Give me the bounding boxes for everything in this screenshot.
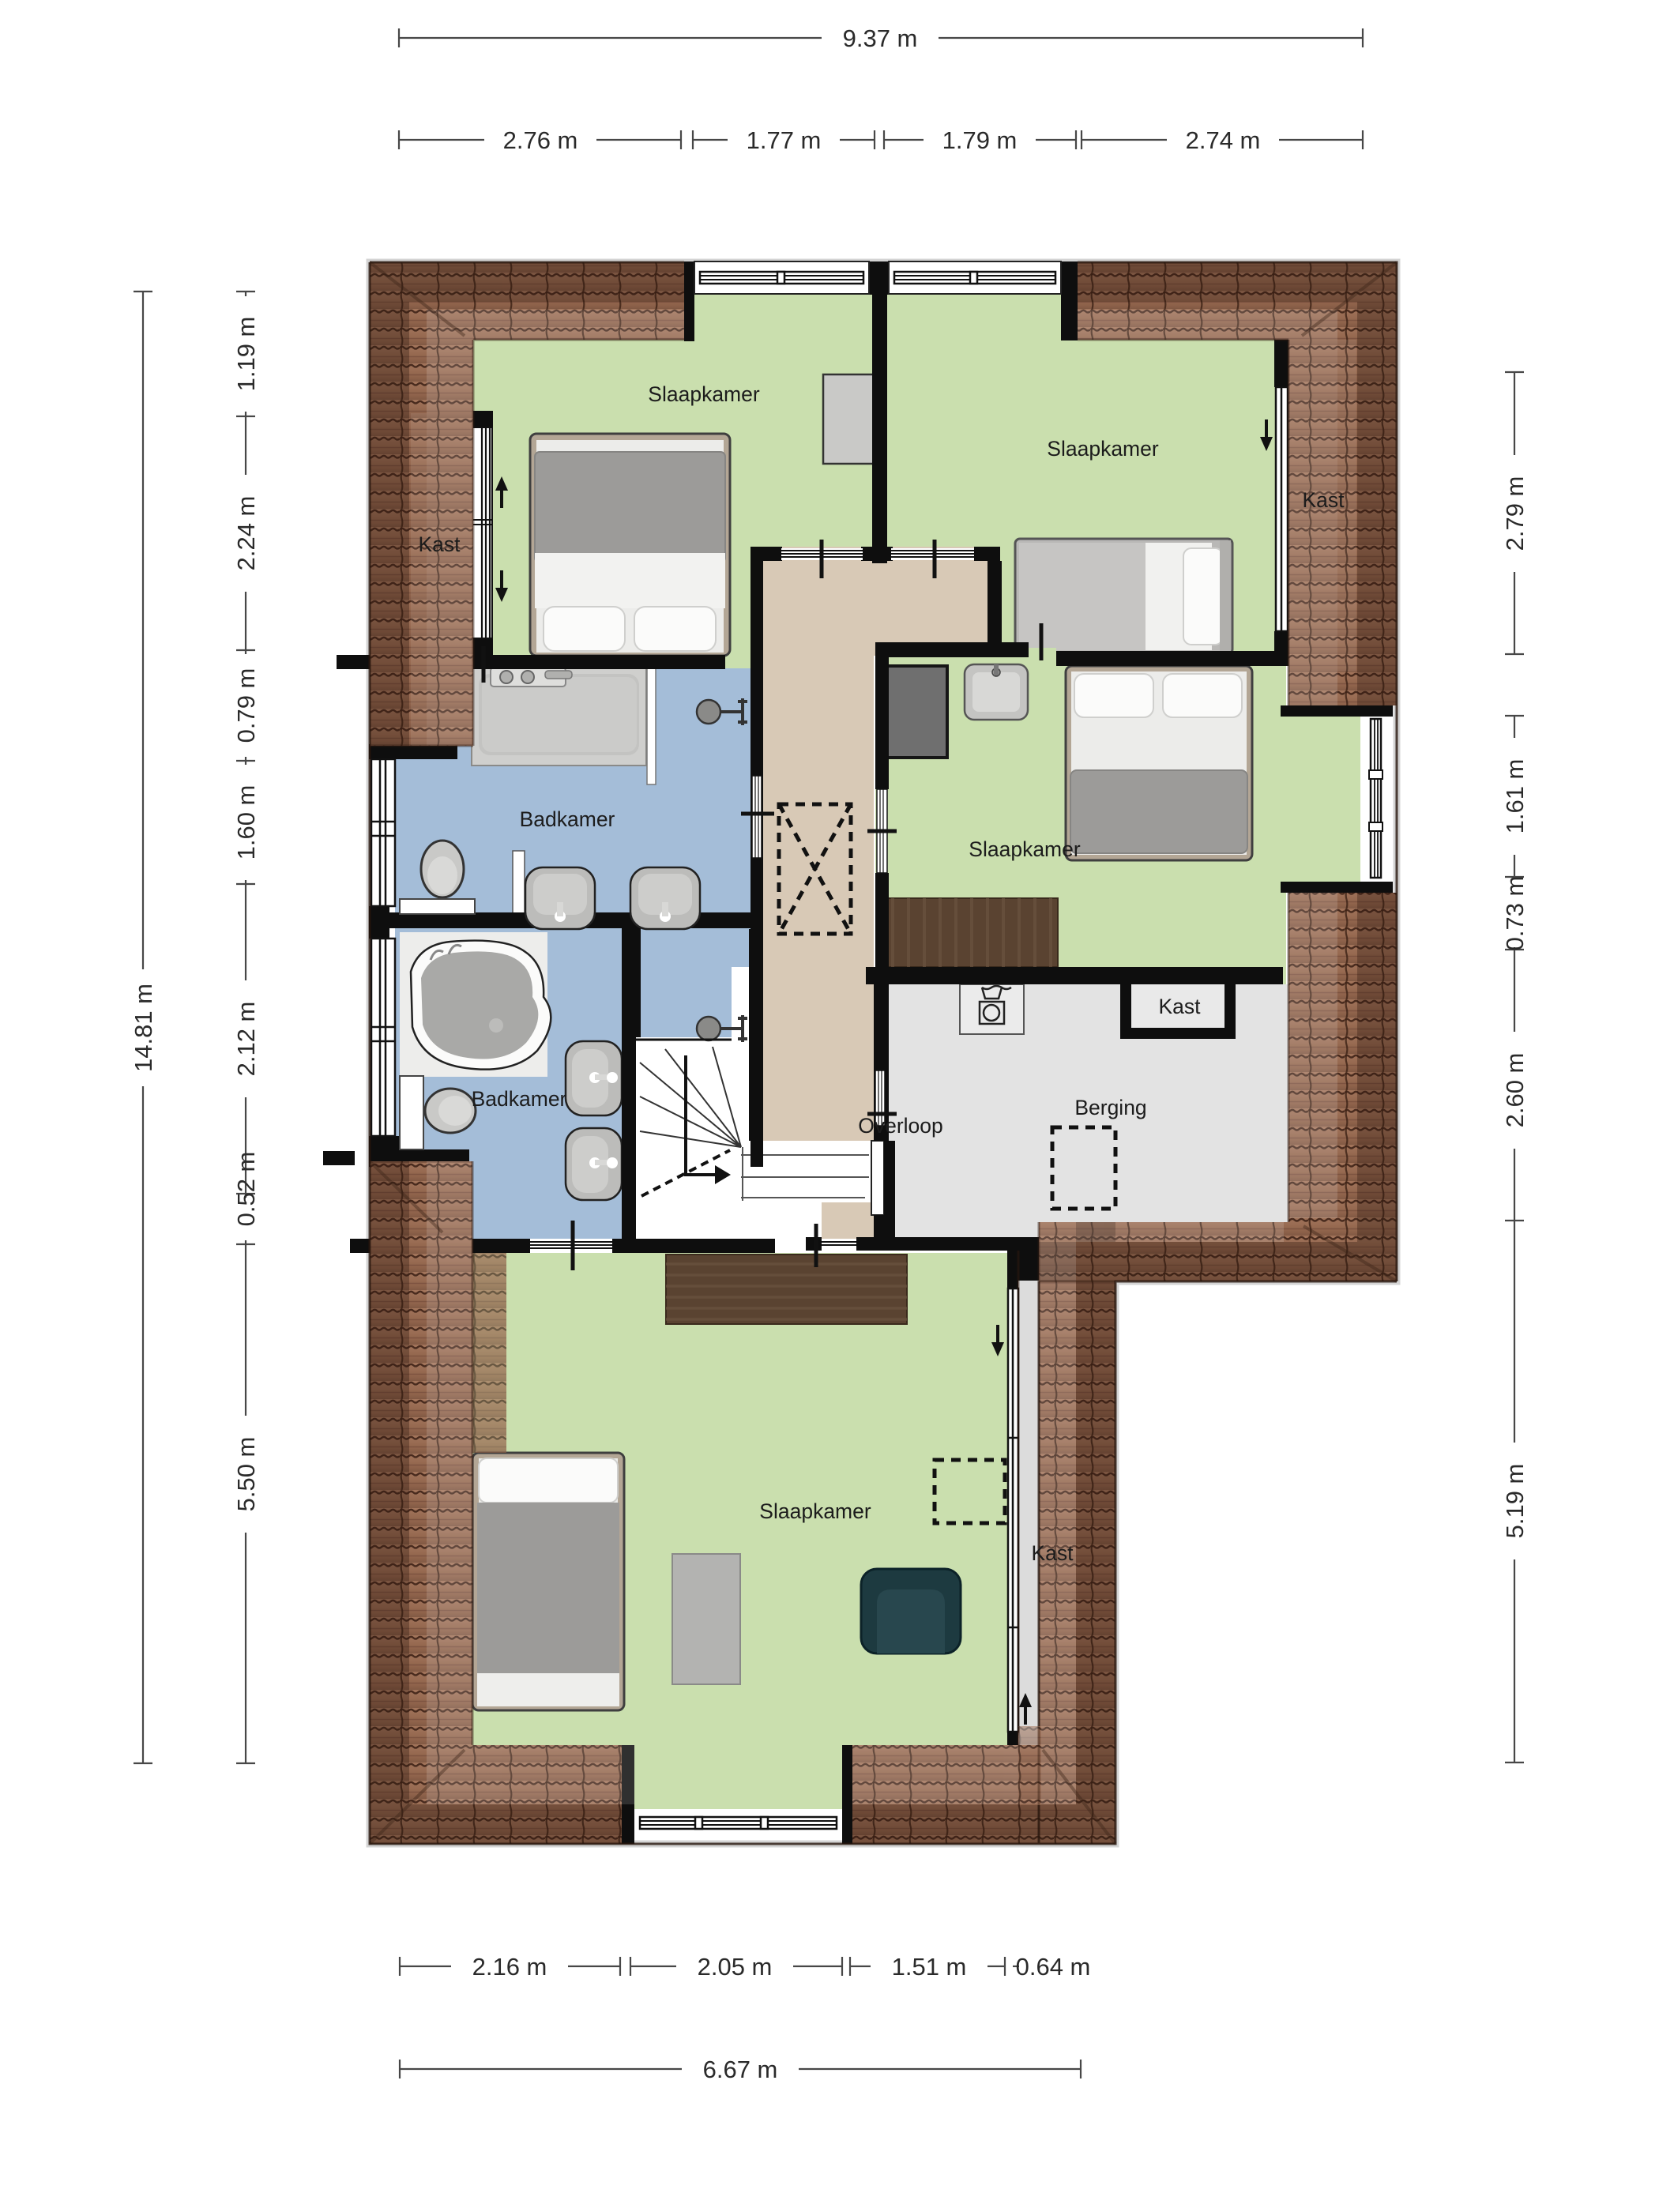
svg-text:2.74 m: 2.74 m — [1186, 126, 1261, 154]
svg-text:2.60 m: 2.60 m — [1501, 1053, 1529, 1128]
svg-text:2.24 m: 2.24 m — [232, 496, 260, 571]
svg-text:Badkamer: Badkamer — [520, 807, 615, 831]
svg-text:Kast: Kast — [1302, 488, 1345, 512]
svg-text:0.64 m: 0.64 m — [1016, 1953, 1091, 1981]
svg-text:1.79 m: 1.79 m — [942, 126, 1018, 154]
svg-text:14.81 m: 14.81 m — [130, 984, 157, 1072]
svg-text:Kast: Kast — [1158, 995, 1201, 1018]
svg-text:Slaapkamer: Slaapkamer — [969, 837, 1081, 861]
svg-text:2.12 m: 2.12 m — [232, 1002, 260, 1077]
svg-text:0.52 m: 0.52 m — [232, 1152, 260, 1227]
svg-text:Slaapkamer: Slaapkamer — [759, 1499, 871, 1523]
svg-text:1.77 m: 1.77 m — [747, 126, 822, 154]
svg-text:1.19 m: 1.19 m — [232, 317, 260, 392]
svg-text:2.79 m: 2.79 m — [1501, 476, 1529, 551]
svg-text:0.73 m: 0.73 m — [1501, 876, 1529, 951]
svg-text:0.79 m: 0.79 m — [232, 668, 260, 743]
svg-text:6.67 m: 6.67 m — [703, 2056, 778, 2083]
svg-text:Kast: Kast — [1031, 1541, 1074, 1565]
svg-text:5.50 m: 5.50 m — [232, 1437, 260, 1512]
svg-text:1.60 m: 1.60 m — [232, 785, 260, 860]
svg-text:1.61 m: 1.61 m — [1501, 759, 1529, 834]
svg-text:Slaapkamer: Slaapkamer — [1047, 437, 1159, 461]
svg-text:Overloop: Overloop — [858, 1114, 943, 1138]
svg-text:1.51 m: 1.51 m — [892, 1953, 967, 1981]
svg-text:5.19 m: 5.19 m — [1501, 1464, 1529, 1539]
svg-text:9.37 m: 9.37 m — [843, 24, 918, 52]
svg-text:2.05 m: 2.05 m — [698, 1953, 773, 1981]
svg-text:2.16 m: 2.16 m — [472, 1953, 547, 1981]
svg-text:Berging: Berging — [1074, 1096, 1146, 1119]
svg-text:Slaapkamer: Slaapkamer — [648, 382, 760, 406]
svg-text:Kast: Kast — [418, 532, 461, 556]
svg-text:Badkamer: Badkamer — [472, 1087, 567, 1111]
svg-text:2.76 m: 2.76 m — [503, 126, 578, 154]
